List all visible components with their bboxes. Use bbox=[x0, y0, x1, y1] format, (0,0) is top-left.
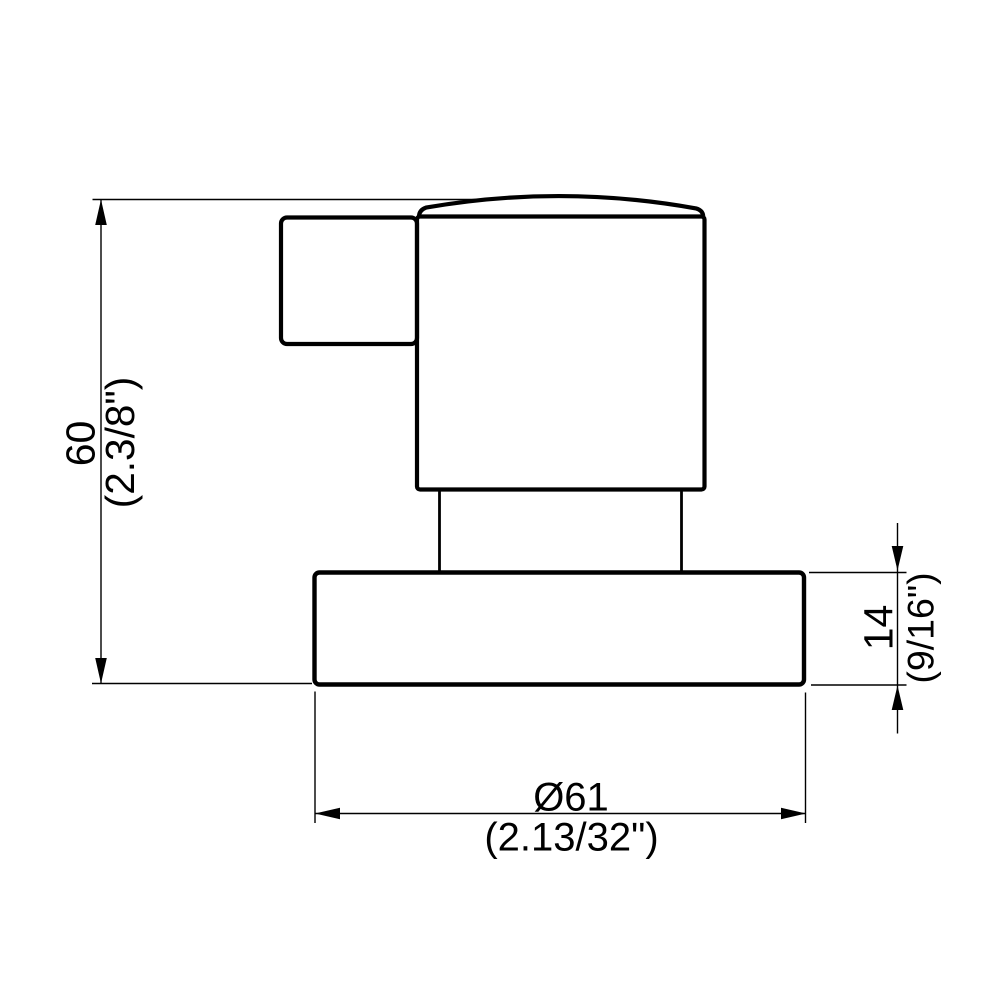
svg-text:(2.13/32"): (2.13/32") bbox=[484, 816, 658, 860]
svg-text:Ø61: Ø61 bbox=[533, 776, 609, 820]
svg-text:(9/16"): (9/16") bbox=[900, 572, 942, 683]
svg-text:(2.3/8"): (2.3/8") bbox=[97, 377, 143, 508]
svg-text:14: 14 bbox=[856, 605, 902, 651]
